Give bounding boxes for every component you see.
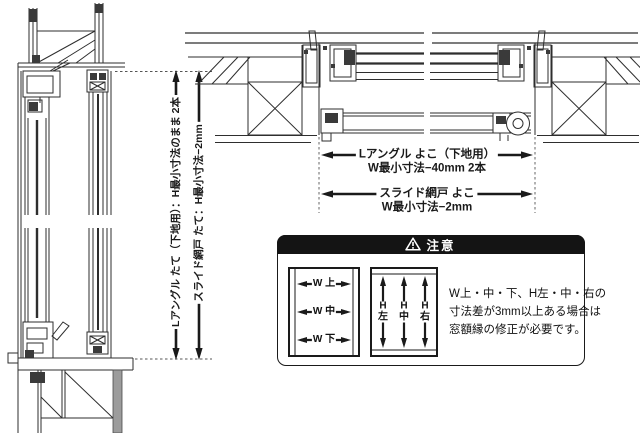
dim-label-screen-horizontal: スライド網戸 よこ <box>376 188 477 201</box>
w-top-label: W 上 <box>312 279 336 290</box>
warning-icon <box>405 237 421 251</box>
dim-value-screen-horizontal: W最小寸法−2mm <box>379 202 475 215</box>
h-measure-diagram: H 左 H 中 H 右 <box>370 267 438 357</box>
caution-note-line3: 窓額縁の修正が必要です。 <box>449 321 606 339</box>
section-drawings <box>0 0 640 433</box>
dim-value-l-angle-horizontal: W最小寸法−40mm 2本 <box>365 163 489 176</box>
horizontal-section-drawing <box>185 31 640 143</box>
caution-box: 注意 W 上 W 中 W 下 <box>277 235 585 366</box>
w-middle-label: W 中 <box>312 307 336 318</box>
h-middle-label: H 中 <box>398 302 410 323</box>
w-measure-diagram: W 上 W 中 W 下 <box>288 267 360 357</box>
technical-drawing-page: Lアングル たて（下地用）：H最小寸法のまま 2本 スライド網戸 たて：H最小寸… <box>0 0 640 433</box>
h-right-label: H 右 <box>419 302 431 323</box>
caution-note-line2: 寸法差が3mm以上ある場合は <box>449 303 606 321</box>
vertical-section-drawing <box>8 3 133 433</box>
caution-note-line1: W上・中・下、H左・中・右の <box>449 285 606 303</box>
dim-label-l-angle-horizontal: Lアングル よこ（下地用） <box>356 149 498 162</box>
w-bottom-label: W 下 <box>312 335 336 346</box>
h-left-label: H 左 <box>377 302 389 323</box>
caution-header: 注意 <box>277 235 585 254</box>
caution-title: 注意 <box>426 235 455 254</box>
dim-label-screen-vertical: スライド網戸 たて：H最小寸法−2mm <box>193 122 205 304</box>
dim-label-l-angle-vertical: Lアングル たて（下地用）：H最小寸法のまま 2本 <box>170 95 182 329</box>
caution-note: W上・中・下、H左・中・右の 寸法差が3mm以上ある場合は 窓額縁の修正が必要で… <box>449 285 606 339</box>
